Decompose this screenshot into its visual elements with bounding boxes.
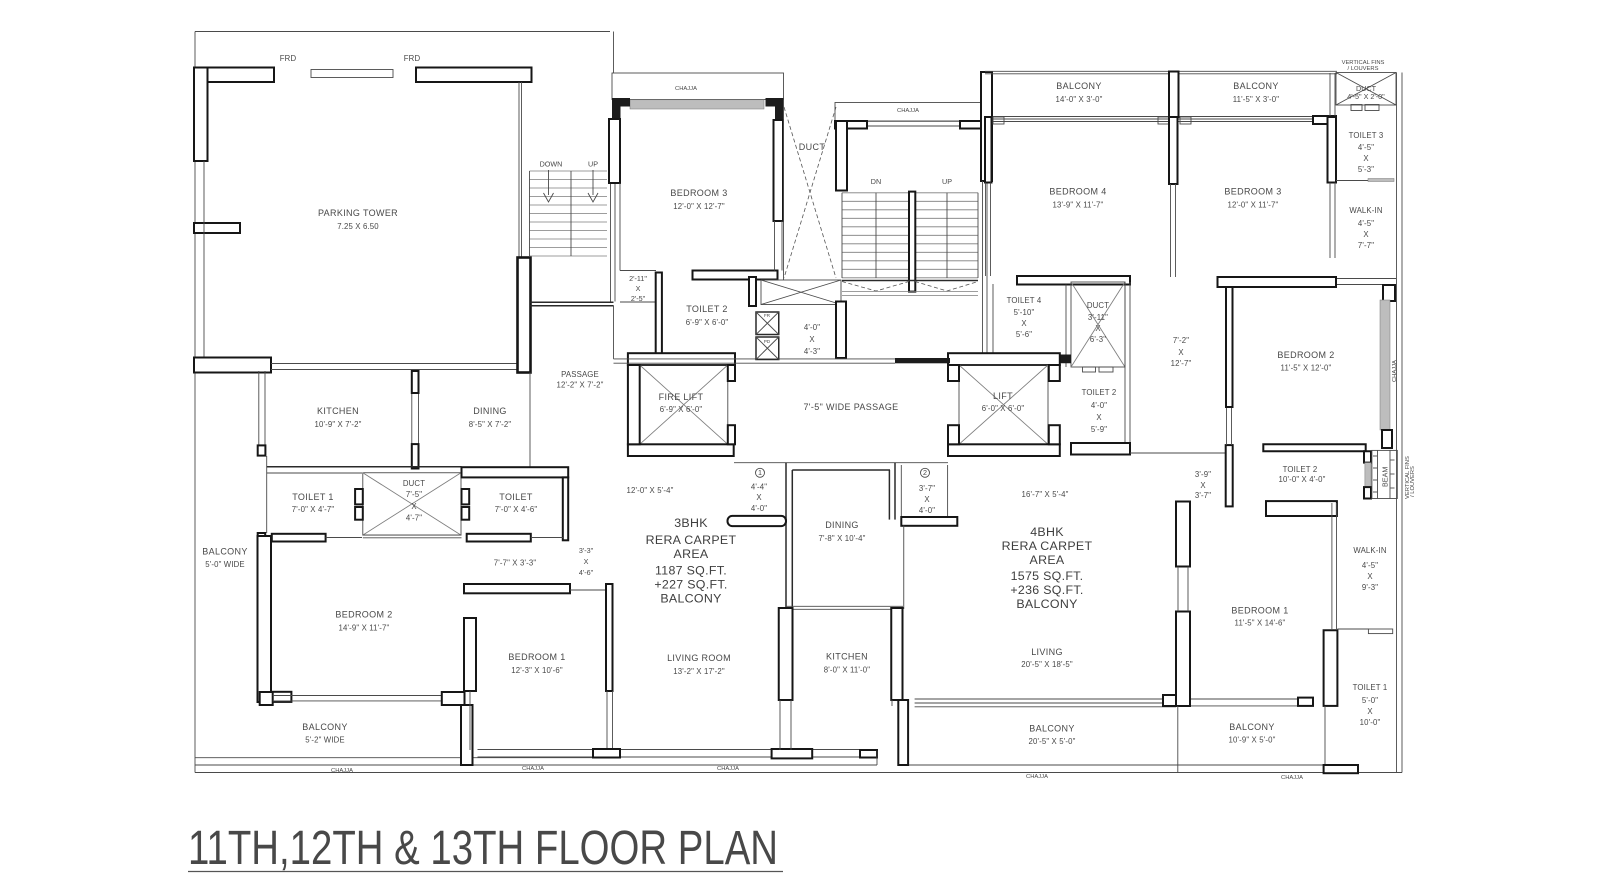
svg-text:PASSAGE: PASSAGE <box>561 370 599 379</box>
svg-text:10'-0" X 4'-0": 10'-0" X 4'-0" <box>1278 475 1325 484</box>
svg-text:7'-7" X 3'-3": 7'-7" X 3'-3" <box>494 559 537 568</box>
svg-text:X: X <box>1363 230 1369 239</box>
svg-text:WALK-IN: WALK-IN <box>1353 546 1386 555</box>
svg-text:16'-7" X 5'-4": 16'-7" X 5'-4" <box>1021 490 1068 499</box>
svg-text:3'-7": 3'-7" <box>919 484 935 493</box>
svg-text:DUCT: DUCT <box>799 142 826 152</box>
svg-text:4'-3": 4'-3" <box>804 347 820 356</box>
svg-text:X: X <box>1095 324 1101 333</box>
svg-text:TOILET 2: TOILET 2 <box>1283 465 1318 474</box>
svg-text:X: X <box>1200 481 1206 490</box>
svg-text:TOILET 1: TOILET 1 <box>292 492 334 502</box>
svg-text:FRD: FRD <box>404 54 421 63</box>
svg-text:20'-5" X 18'-5": 20'-5" X 18'-5" <box>1021 660 1073 669</box>
svg-text:FIRE LIFT: FIRE LIFT <box>659 392 704 402</box>
svg-text:3'-9": 3'-9" <box>1195 470 1211 479</box>
svg-text:4BHK: 4BHK <box>1030 525 1064 539</box>
svg-text:BEDROOM 1: BEDROOM 1 <box>1231 606 1288 616</box>
svg-text:AREA: AREA <box>1030 553 1065 567</box>
svg-text:RERA CARPET: RERA CARPET <box>646 533 737 547</box>
svg-text:BEDROOM 1: BEDROOM 1 <box>508 652 565 662</box>
svg-text:DINING: DINING <box>473 406 507 416</box>
svg-text:6'-9" X 6'-0": 6'-9" X 6'-0" <box>686 318 729 327</box>
svg-text:WALK-IN: WALK-IN <box>1349 206 1382 215</box>
svg-text:14'-9" X 11'-7": 14'-9" X 11'-7" <box>339 624 390 633</box>
svg-text:BALCONY: BALCONY <box>1229 722 1274 732</box>
svg-text:BALCONY: BALCONY <box>1029 724 1074 734</box>
svg-text:BALCONY: BALCONY <box>1016 597 1077 611</box>
svg-text:X: X <box>1363 154 1369 163</box>
svg-text:X: X <box>924 495 930 504</box>
svg-text:11'-5" X 3'-0": 11'-5" X 3'-0" <box>1233 95 1280 104</box>
svg-text:3'-11": 3'-11" <box>1088 313 1108 322</box>
svg-text:/ LOUVERS: / LOUVERS <box>1410 466 1416 497</box>
svg-text:2: 2 <box>923 468 927 477</box>
svg-text:UP: UP <box>588 160 598 169</box>
svg-text:1: 1 <box>758 468 762 477</box>
svg-text:5'-9": 5'-9" <box>1091 425 1107 434</box>
svg-text:4'-6": 4'-6" <box>579 568 594 577</box>
svg-text:X: X <box>584 557 589 566</box>
svg-text:5'-3": 5'-3" <box>1358 165 1374 174</box>
svg-text:3'-7": 3'-7" <box>1195 491 1211 500</box>
svg-text:BEDROOM 4: BEDROOM 4 <box>1049 187 1106 197</box>
svg-text:BEDROOM 3: BEDROOM 3 <box>670 188 727 198</box>
svg-text:CHAJJA: CHAJJA <box>331 768 353 774</box>
svg-text:CHAJJA: CHAJJA <box>675 86 697 92</box>
svg-text:KITCHEN: KITCHEN <box>826 652 868 662</box>
svg-text:8'-0" X 11'-0": 8'-0" X 11'-0" <box>824 666 871 675</box>
svg-text:7'-0" X 4'-7": 7'-0" X 4'-7" <box>292 505 335 514</box>
svg-text:TOILET 2: TOILET 2 <box>686 304 728 314</box>
svg-text:5'-0" WIDE: 5'-0" WIDE <box>205 560 245 569</box>
svg-text:BALCONY: BALCONY <box>302 722 347 732</box>
svg-text:4'-0": 4'-0" <box>804 323 820 332</box>
svg-text:13'-9" X 11'-7": 13'-9" X 11'-7" <box>1053 201 1104 210</box>
svg-text:5'-6": 5'-6" <box>1016 330 1032 339</box>
svg-text:+236 SQ.FT.: +236 SQ.FT. <box>1010 583 1083 597</box>
svg-text:7'-5" WIDE PASSAGE: 7'-5" WIDE PASSAGE <box>803 402 898 412</box>
svg-text:BALCONY: BALCONY <box>1056 81 1101 91</box>
svg-text:X: X <box>1178 348 1184 357</box>
svg-text:12'-0" X 5'-4": 12'-0" X 5'-4" <box>626 486 673 495</box>
svg-text:X: X <box>1367 707 1373 716</box>
svg-text:DUCT: DUCT <box>403 479 425 488</box>
svg-text:BALCONY: BALCONY <box>1233 81 1278 91</box>
svg-text:2'-5": 2'-5" <box>631 294 646 303</box>
svg-text:8'-5" X 7'-2": 8'-5" X 7'-2" <box>469 420 512 429</box>
svg-text:7'-7": 7'-7" <box>1358 241 1374 250</box>
svg-text:PARKING TOWER: PARKING TOWER <box>318 208 398 218</box>
svg-text:4'-0": 4'-0" <box>1091 401 1107 410</box>
svg-text:CHAJJA: CHAJJA <box>1026 774 1048 780</box>
svg-text:CHAJJA: CHAJJA <box>1281 775 1303 781</box>
svg-text:BALCONY: BALCONY <box>660 592 721 606</box>
svg-text:4'-5": 4'-5" <box>1358 219 1374 228</box>
svg-text:TOILET 1: TOILET 1 <box>1353 683 1388 692</box>
svg-text:6'-3": 6'-3" <box>1090 335 1106 344</box>
svg-text:CHAJJA: CHAJJA <box>717 766 739 772</box>
svg-text:LIVING ROOM: LIVING ROOM <box>667 653 731 663</box>
svg-text:4'-5" X 2'-0": 4'-5" X 2'-0" <box>1347 92 1385 101</box>
svg-text:X: X <box>809 335 815 344</box>
svg-text:X: X <box>1021 319 1027 328</box>
svg-text:7'-2": 7'-2" <box>1173 336 1189 345</box>
svg-text:4'-5": 4'-5" <box>1362 561 1378 570</box>
svg-text:UP: UP <box>942 177 952 186</box>
svg-text:DOWN: DOWN <box>540 160 563 169</box>
svg-text:LIFT: LIFT <box>993 391 1013 401</box>
svg-text:10'-9" X 5'-0": 10'-9" X 5'-0" <box>1228 736 1275 745</box>
svg-text:X: X <box>1367 572 1373 581</box>
svg-text:BALCONY: BALCONY <box>202 547 247 557</box>
svg-text:10'-9" X 7'-2": 10'-9" X 7'-2" <box>314 420 361 429</box>
svg-text:12'-3" X 10'-6": 12'-3" X 10'-6" <box>511 666 563 675</box>
svg-text:12'-0" X 12'-7": 12'-0" X 12'-7" <box>673 202 725 211</box>
svg-text:DN: DN <box>871 177 881 186</box>
svg-text:CHAJJA: CHAJJA <box>1392 360 1398 382</box>
svg-text:TOILET 3: TOILET 3 <box>1349 131 1384 140</box>
svg-text:9'-3": 9'-3" <box>1362 583 1378 592</box>
svg-text:X: X <box>411 502 417 511</box>
svg-text:TOILET 2: TOILET 2 <box>1082 388 1117 397</box>
svg-text:4'-5": 4'-5" <box>1358 143 1374 152</box>
svg-text:1187 SQ.FT.: 1187 SQ.FT. <box>655 564 727 578</box>
svg-text:BEDROOM 3: BEDROOM 3 <box>1224 187 1281 197</box>
svg-text:CHAJJA: CHAJJA <box>897 108 919 114</box>
svg-text:+227 SQ.FT.: +227 SQ.FT. <box>654 578 727 592</box>
svg-text:5'-0": 5'-0" <box>1362 696 1378 705</box>
svg-text:4'-0": 4'-0" <box>751 504 767 513</box>
svg-text:5'-10": 5'-10" <box>1014 308 1035 317</box>
svg-text:1575 SQ.FT.: 1575 SQ.FT. <box>1011 569 1084 583</box>
svg-text:14'-0" X 3'-0": 14'-0" X 3'-0" <box>1055 95 1102 104</box>
svg-text:FRD: FRD <box>280 54 297 63</box>
svg-text:/ LOUVERS: / LOUVERS <box>1348 66 1379 72</box>
svg-text:7'-5": 7'-5" <box>406 490 422 499</box>
svg-text:7.25 X 6.50: 7.25 X 6.50 <box>337 222 379 231</box>
svg-text:BEDROOM 2: BEDROOM 2 <box>1277 350 1334 360</box>
svg-text:2'-11": 2'-11" <box>629 274 647 283</box>
svg-text:6'-0" X 6'-0": 6'-0" X 6'-0" <box>982 404 1025 413</box>
svg-text:TOILET 4: TOILET 4 <box>1007 296 1042 305</box>
svg-text:12'-7": 12'-7" <box>1171 359 1192 368</box>
svg-text:5'-2" WIDE: 5'-2" WIDE <box>305 736 345 745</box>
svg-text:DUCT: DUCT <box>1087 301 1109 310</box>
svg-text:FR: FR <box>764 313 771 318</box>
svg-text:DINING: DINING <box>825 520 859 530</box>
svg-text:BEAM: BEAM <box>1381 467 1390 487</box>
svg-text:12'-2" X 7'-2": 12'-2" X 7'-2" <box>556 381 603 390</box>
svg-text:11'-5" X 12'-0": 11'-5" X 12'-0" <box>1281 364 1332 373</box>
svg-text:X: X <box>636 284 641 293</box>
svg-text:7'-8" X 10'-4": 7'-8" X 10'-4" <box>818 534 865 543</box>
svg-text:X: X <box>1096 413 1102 422</box>
svg-text:13'-2" X 17'-2": 13'-2" X 17'-2" <box>673 667 725 676</box>
svg-text:3'-3": 3'-3" <box>579 546 594 555</box>
svg-text:10'-0": 10'-0" <box>1360 718 1381 727</box>
svg-text:4'-4": 4'-4" <box>751 483 767 492</box>
svg-text:20'-5" X 5'-0": 20'-5" X 5'-0" <box>1028 737 1075 746</box>
svg-text:4'-0": 4'-0" <box>919 506 935 515</box>
svg-text:X: X <box>756 493 762 502</box>
svg-text:6'-9" X 6'-0": 6'-9" X 6'-0" <box>660 405 703 414</box>
svg-text:BEDROOM 2: BEDROOM 2 <box>335 610 392 620</box>
svg-text:7'-0" X 4'-6": 7'-0" X 4'-6" <box>495 505 538 514</box>
svg-text:PD: PD <box>764 339 771 344</box>
svg-text:11TH,12TH & 13TH FLOOR PLAN: 11TH,12TH & 13TH FLOOR PLAN <box>188 822 778 875</box>
svg-text:CHAJJA: CHAJJA <box>522 766 544 772</box>
svg-text:LIVING: LIVING <box>1031 647 1063 657</box>
svg-text:3BHK: 3BHK <box>674 516 708 530</box>
svg-text:11'-5" X 14'-6": 11'-5" X 14'-6" <box>1235 619 1286 628</box>
svg-text:12'-0" X 11'-7": 12'-0" X 11'-7" <box>1228 201 1279 210</box>
svg-text:4'-7": 4'-7" <box>406 514 422 523</box>
svg-text:AREA: AREA <box>674 547 709 561</box>
svg-text:RERA CARPET: RERA CARPET <box>1002 539 1093 553</box>
svg-text:TOILET: TOILET <box>499 492 533 502</box>
svg-text:KITCHEN: KITCHEN <box>317 406 359 416</box>
